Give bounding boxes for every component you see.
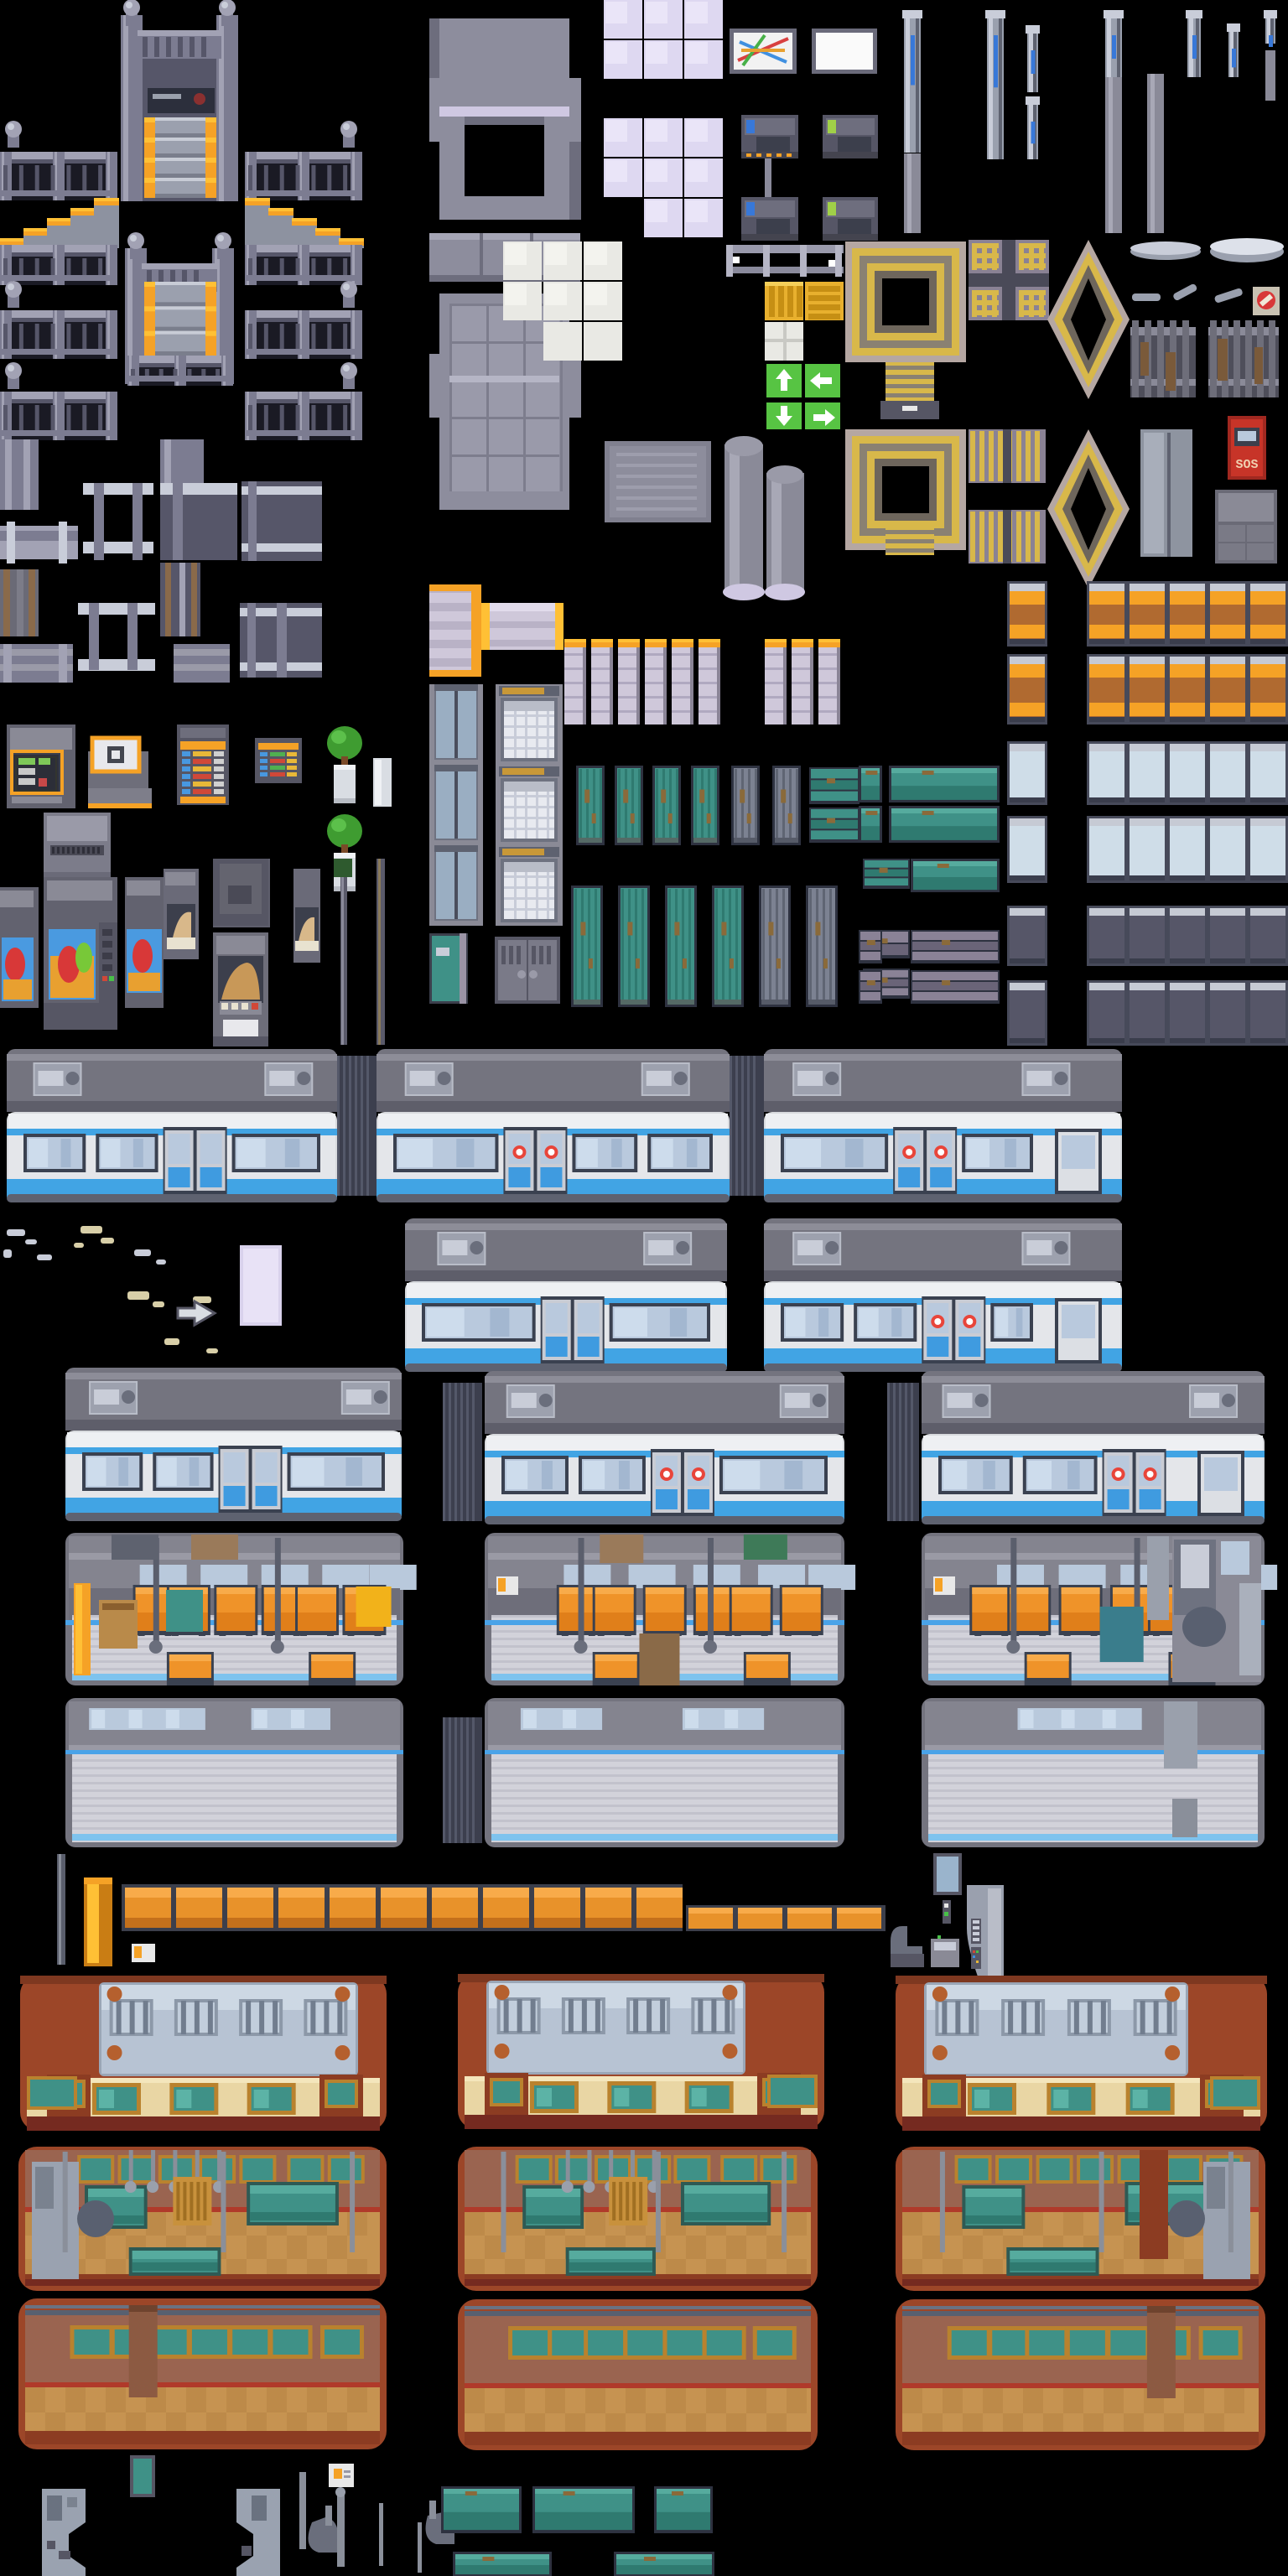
- svg-text:SOS: SOS: [1235, 458, 1258, 472]
